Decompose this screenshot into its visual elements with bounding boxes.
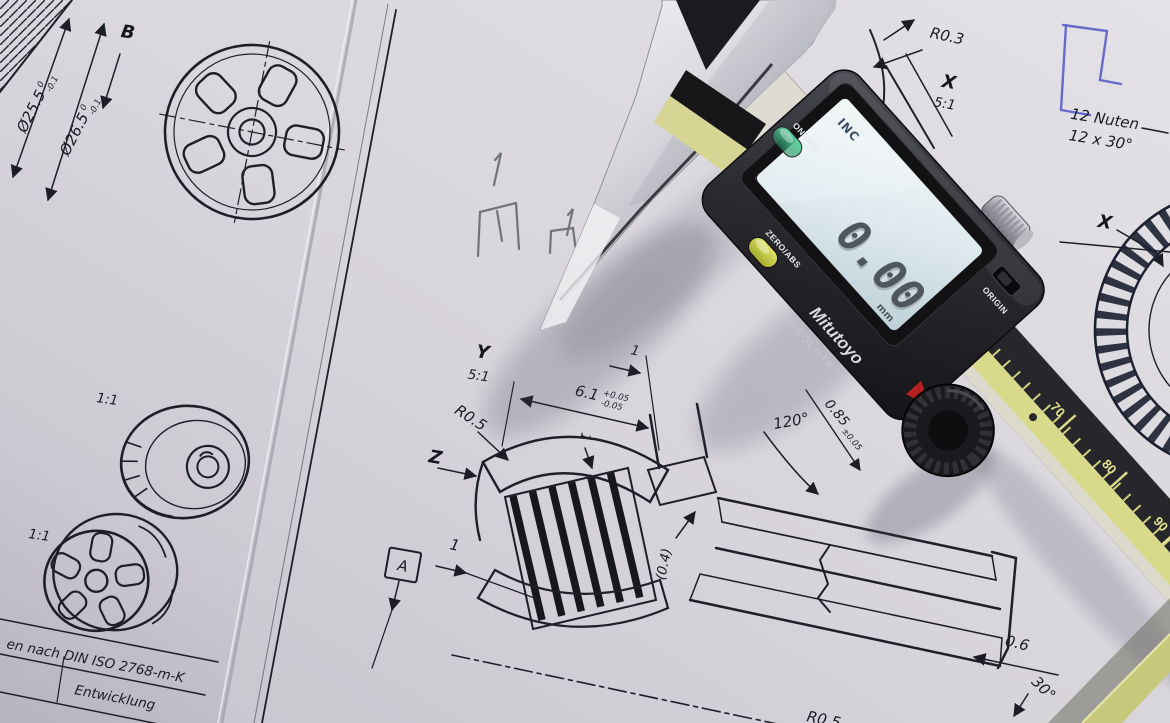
technical-drawings-with-digital-caliper-photo: Ø25.5 0 -0.1 Ø26.5 0 -0.1 B 1:1 [0,0,1170,723]
scale-label-bottom: 1:1 [27,526,51,545]
scale-label-top: 1:1 [95,390,119,409]
detail-y-scale: 5:1 [467,367,491,386]
photo-stage: Ø25.5 0 -0.1 Ø26.5 0 -0.1 B 1:1 [0,0,1170,723]
